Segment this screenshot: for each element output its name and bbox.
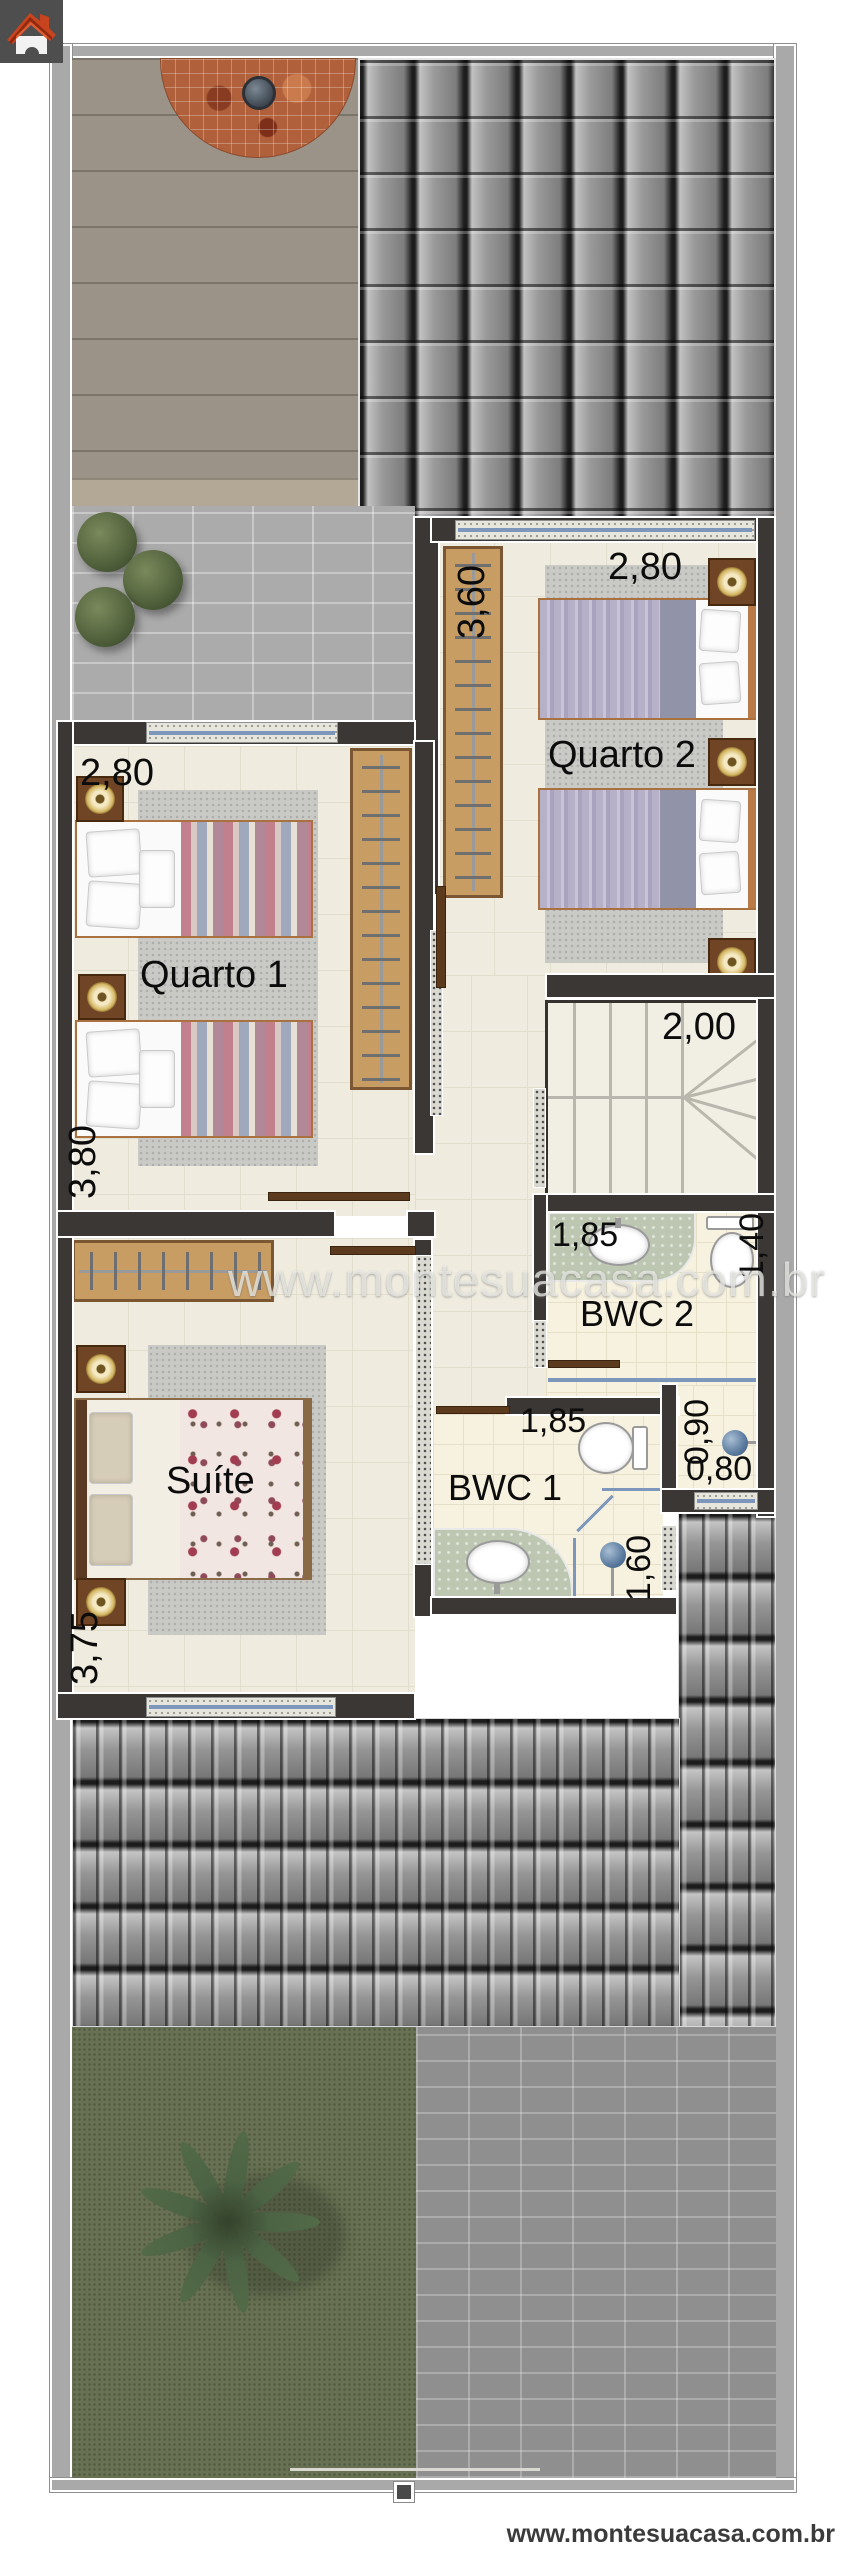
shrub [123, 550, 183, 610]
pillow [85, 880, 142, 930]
stair-mid-line [548, 1096, 684, 1099]
pillow [89, 1412, 133, 1484]
quarto1-bed-2 [75, 1020, 313, 1138]
roof-bottom [72, 1718, 680, 2027]
bwc1-shower-glass [602, 1488, 660, 1491]
bwc1-label: BWC 1 [448, 1470, 562, 1506]
bedspread [540, 600, 660, 718]
bwc1-shower-arm [611, 1566, 614, 1598]
palm-tree [133, 2127, 323, 2317]
pillow [139, 1050, 175, 1108]
quarto1-wardrobe [350, 748, 412, 1090]
yard-gate-post [394, 2482, 414, 2502]
pillow [699, 799, 742, 844]
roof-top [358, 58, 776, 522]
dim-bwc1-shower-depth: 1,60 [622, 1508, 662, 1628]
bwc2-shower-glass [548, 1378, 760, 1382]
pillow [85, 828, 142, 878]
quarto2-label: Quarto 2 [548, 736, 696, 774]
quarto2-door-leaf [436, 886, 446, 988]
bwc1-faucet [494, 1582, 500, 1594]
quarto1-window [146, 722, 338, 743]
pillow [139, 850, 175, 908]
wall [660, 1383, 678, 1498]
bedspread [181, 1022, 311, 1136]
dim-quarto2-width: 2,80 [608, 548, 682, 586]
quarto1-label: Quarto 1 [140, 956, 288, 994]
bwc1-toilet-tank [632, 1426, 648, 1470]
footer-url: www.montesuacasa.com.br [440, 2520, 835, 2549]
quarto2-bed-1 [538, 598, 760, 720]
fire-pit [242, 76, 276, 110]
bwc1-shower-glass [573, 1538, 576, 1600]
blanket [660, 600, 696, 718]
boundary-wall-bottom [50, 2478, 796, 2492]
bwc2-door-leaf [548, 1360, 620, 1368]
dim-quarto1-width: 2,80 [80, 754, 154, 792]
floor-plan-page: 2,80 3,60 Quarto 2 2,80 3,80 Quarto 1 2,… [0, 0, 842, 2560]
bwc2-shower-window [694, 1492, 758, 1510]
suite-label: Suíte [166, 1462, 255, 1500]
dim-stairs-width: 2,00 [662, 1008, 736, 1046]
yard-gate-line [290, 2468, 540, 2471]
quarto2-bed-2 [538, 788, 760, 910]
quarto2-window [455, 520, 755, 540]
quarto2-nightstand [708, 558, 756, 606]
blanket [660, 790, 696, 908]
pillow [699, 609, 742, 654]
hatched-wall [533, 1320, 547, 1368]
quarto2-nightstand [708, 738, 756, 786]
dim-bwc2-width: 1,85 [552, 1218, 618, 1252]
dim-suite-depth: 3,75 [66, 1588, 106, 1708]
dim-quarto1-depth: 3,80 [64, 1102, 104, 1222]
deck-edge-strip [72, 478, 372, 506]
pillow [699, 661, 742, 706]
headboard [76, 1400, 87, 1578]
shrub [75, 587, 135, 647]
house-icon [0, 0, 63, 63]
bwc1-sink [466, 1540, 530, 1584]
dim-bwc1-width: 1,85 [520, 1404, 586, 1438]
dim-bwc2-shower-depth: 0,80 [686, 1452, 752, 1486]
yard-pavers [416, 2027, 776, 2478]
pillow [699, 851, 742, 896]
pillow [85, 1028, 142, 1078]
wall [545, 973, 776, 999]
quarto1-bed-1 [75, 820, 313, 938]
quarto1-nightstand [78, 974, 126, 1020]
bedspread [540, 790, 660, 908]
quarto1-door-leaf [268, 1192, 410, 1201]
hatched-wall [661, 1525, 677, 1591]
wall [406, 1210, 436, 1238]
hatched-wall [533, 1088, 546, 1188]
wall [756, 516, 776, 1518]
footboard [303, 1400, 310, 1578]
pillow [89, 1494, 133, 1566]
dim-quarto2-depth: 3,60 [453, 542, 493, 662]
bwc1-door-leaf [436, 1406, 510, 1414]
bedspread [181, 822, 311, 936]
suite-nightstand [76, 1345, 126, 1393]
roof-bottom-right [678, 1512, 776, 2027]
bwc1-toilet-bowl [578, 1422, 634, 1474]
watermark: www.montesuacasa.com.br [228, 1252, 826, 1307]
boundary-wall-top [50, 44, 796, 58]
suite-window [146, 1697, 336, 1717]
